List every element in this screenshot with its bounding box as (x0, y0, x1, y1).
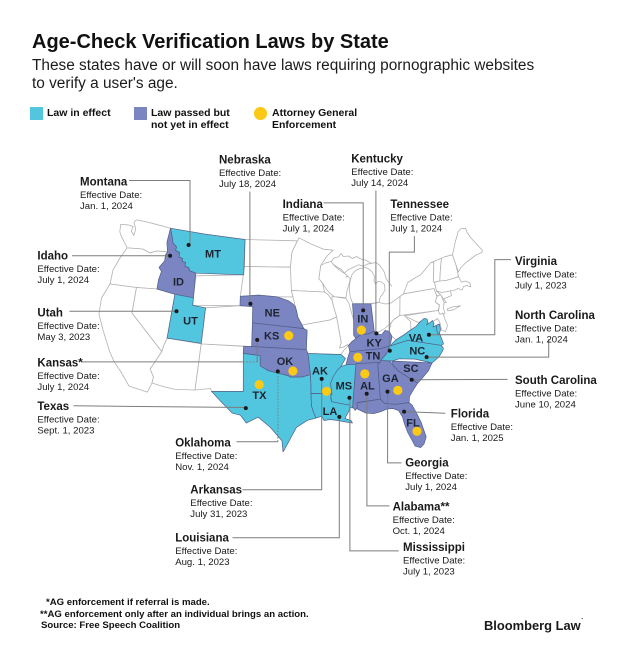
svg-text:KS: KS (264, 331, 279, 343)
svg-text:July 1, 2024: July 1, 2024 (37, 275, 89, 286)
svg-text:Oct. 1, 2024: Oct. 1, 2024 (393, 526, 446, 537)
svg-text:TX: TX (252, 390, 267, 402)
svg-text:July 1, 2024: July 1, 2024 (283, 223, 335, 234)
svg-text:Effective Date:: Effective Date: (283, 212, 345, 223)
svg-text:ID: ID (173, 277, 184, 289)
svg-text:LA: LA (323, 406, 338, 418)
svg-text:NC: NC (409, 346, 425, 358)
svg-text:Effective Date:: Effective Date: (351, 167, 413, 178)
svg-text:MS: MS (336, 381, 353, 393)
svg-text:Effective Date:: Effective Date: (393, 515, 455, 526)
svg-text:Oklahoma: Oklahoma (175, 437, 231, 449)
svg-text:Mississippi: Mississippi (403, 542, 465, 554)
svg-text:North Carolina: North Carolina (515, 310, 595, 322)
svg-text:July 18, 2024: July 18, 2024 (219, 179, 277, 190)
svg-text:Jan. 1, 2024: Jan. 1, 2024 (80, 201, 133, 212)
svg-text:Effective Date:: Effective Date: (175, 451, 237, 462)
svg-text:Louisiana: Louisiana (175, 533, 229, 545)
svg-text:Kansas*: Kansas* (37, 357, 83, 369)
svg-text:Idaho: Idaho (37, 250, 68, 262)
svg-text:Jan. 1, 2025: Jan. 1, 2025 (451, 433, 504, 444)
svg-text:June 10, 2024: June 10, 2024 (515, 399, 576, 410)
svg-text:Effective Date:: Effective Date: (390, 212, 452, 223)
svg-text:Indiana: Indiana (283, 199, 324, 211)
svg-text:Texas: Texas (37, 401, 69, 413)
svg-text:Virginia: Virginia (515, 256, 558, 268)
svg-text:Florida: Florida (451, 409, 490, 421)
svg-text:IN: IN (357, 314, 368, 326)
svg-text:Effective Date:: Effective Date: (175, 546, 237, 557)
svg-text:Effective Date:: Effective Date: (219, 168, 281, 179)
svg-text:July 1, 2024: July 1, 2024 (37, 382, 89, 393)
svg-text:July 1, 2023: July 1, 2023 (515, 281, 567, 292)
svg-text:TN: TN (366, 351, 381, 363)
svg-text:OK: OK (277, 356, 294, 368)
svg-text:AL: AL (360, 381, 375, 393)
svg-text:July 1, 2023: July 1, 2023 (403, 567, 455, 578)
svg-text:Jan. 1, 2024: Jan. 1, 2024 (515, 335, 568, 346)
svg-text:NE: NE (265, 308, 280, 320)
svg-text:Effective Date:: Effective Date: (37, 415, 99, 426)
svg-text:UT: UT (183, 316, 198, 328)
svg-text:Effective Date:: Effective Date: (403, 556, 465, 567)
svg-text:South Carolina: South Carolina (515, 375, 597, 387)
svg-text:Aug. 1, 2023: Aug. 1, 2023 (175, 557, 229, 568)
svg-text:KY: KY (367, 338, 383, 350)
svg-text:Effective Date:: Effective Date: (37, 264, 99, 275)
svg-text:Sept. 1, 2023: Sept. 1, 2023 (37, 426, 94, 437)
svg-text:Effective Date:: Effective Date: (515, 270, 577, 281)
svg-text:Nov. 1, 2024: Nov. 1, 2024 (175, 462, 229, 473)
svg-text:Arkansas: Arkansas (190, 485, 242, 497)
svg-text:FL: FL (406, 418, 420, 430)
svg-text:Georgia: Georgia (405, 458, 449, 470)
svg-text:July 14, 2024: July 14, 2024 (351, 178, 409, 189)
svg-text:Effective Date:: Effective Date: (37, 321, 99, 332)
svg-text:Effective Date:: Effective Date: (405, 471, 467, 482)
svg-text:Effective Date:: Effective Date: (515, 388, 577, 399)
svg-text:MT: MT (205, 249, 221, 261)
svg-text:July 31, 2023: July 31, 2023 (190, 509, 247, 520)
svg-text:Effective Date:: Effective Date: (37, 371, 99, 382)
svg-text:July 1, 2024: July 1, 2024 (390, 223, 442, 234)
svg-text:Nebraska: Nebraska (219, 155, 271, 167)
svg-text:VA: VA (409, 332, 424, 344)
svg-text:May 3, 2023: May 3, 2023 (37, 332, 90, 343)
svg-text:Kentucky: Kentucky (351, 154, 403, 166)
svg-text:Alabama**: Alabama** (393, 502, 450, 514)
svg-text:Effective Date:: Effective Date: (451, 422, 513, 433)
svg-text:Effective Date:: Effective Date: (80, 190, 142, 201)
svg-text:AK: AK (312, 365, 328, 377)
svg-text:SC: SC (403, 363, 418, 375)
svg-text:GA: GA (382, 373, 399, 385)
svg-text:Montana: Montana (80, 177, 128, 189)
svg-text:Tennessee: Tennessee (390, 199, 449, 211)
svg-text:July 1, 2024: July 1, 2024 (405, 482, 457, 493)
svg-text:Effective Date:: Effective Date: (515, 324, 577, 335)
svg-text:Effective Date:: Effective Date: (190, 498, 252, 509)
svg-text:Utah: Utah (37, 308, 63, 320)
